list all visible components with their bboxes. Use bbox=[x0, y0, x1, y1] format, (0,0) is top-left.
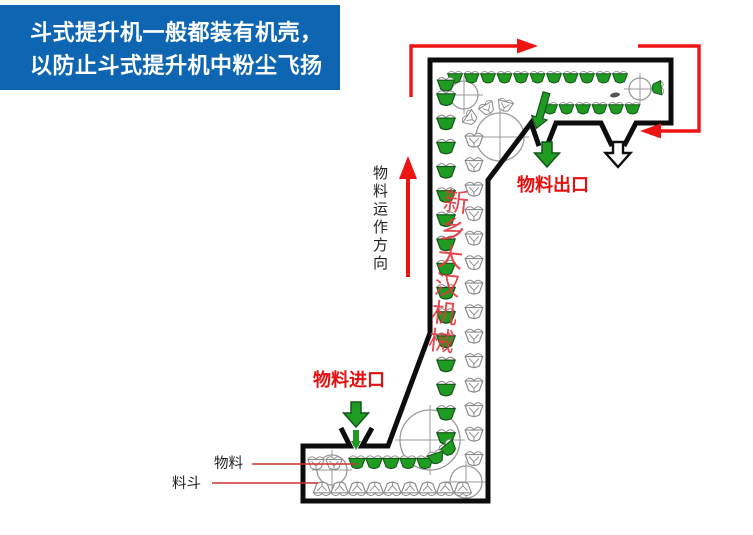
flow-direction-label: 物料运作方向 bbox=[369, 165, 390, 273]
bucket-label: 料斗 bbox=[172, 472, 201, 493]
bucket-elevator-infographic: 斗式提升机一般都装有机壳， 以防止斗式提升机中粉尘飞扬 bbox=[0, 0, 753, 535]
outlet-label: 物料出口 bbox=[517, 171, 589, 197]
inlet-label: 物料进口 bbox=[313, 366, 385, 392]
material-label: 物料 bbox=[214, 452, 243, 473]
red-up-arrow-icon bbox=[399, 156, 417, 277]
